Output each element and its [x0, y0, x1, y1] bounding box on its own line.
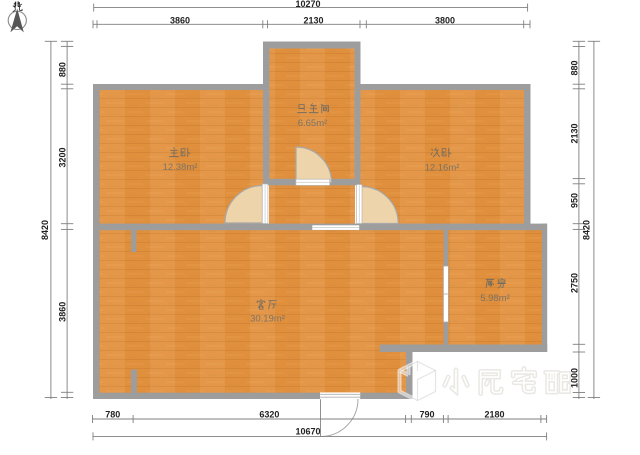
svg-text:30.19m²: 30.19m²	[250, 314, 285, 325]
svg-text:780: 780	[105, 410, 120, 420]
svg-text:3200: 3200	[58, 147, 68, 167]
svg-text:10670: 10670	[295, 426, 320, 436]
svg-text:2130: 2130	[569, 123, 579, 143]
svg-text:3860: 3860	[170, 15, 190, 25]
svg-text:8420: 8420	[40, 220, 50, 240]
svg-text:2750: 2750	[569, 273, 579, 293]
svg-text:880: 880	[569, 60, 579, 75]
svg-text:12.16m²: 12.16m²	[425, 163, 460, 174]
svg-text:6320: 6320	[259, 410, 279, 420]
svg-text:12.38m²: 12.38m²	[163, 162, 198, 173]
svg-text:10270: 10270	[295, 0, 320, 9]
svg-text:5.98m²: 5.98m²	[480, 293, 510, 304]
svg-text:8420: 8420	[582, 220, 592, 240]
svg-text:790: 790	[419, 410, 434, 420]
svg-text:2130: 2130	[303, 15, 323, 25]
svg-text:950: 950	[569, 193, 579, 208]
svg-text:880: 880	[58, 62, 68, 77]
svg-text:3860: 3860	[58, 302, 68, 322]
svg-text:3800: 3800	[435, 15, 455, 25]
svg-text:2180: 2180	[484, 410, 504, 420]
svg-text:6.65m²: 6.65m²	[298, 118, 328, 129]
